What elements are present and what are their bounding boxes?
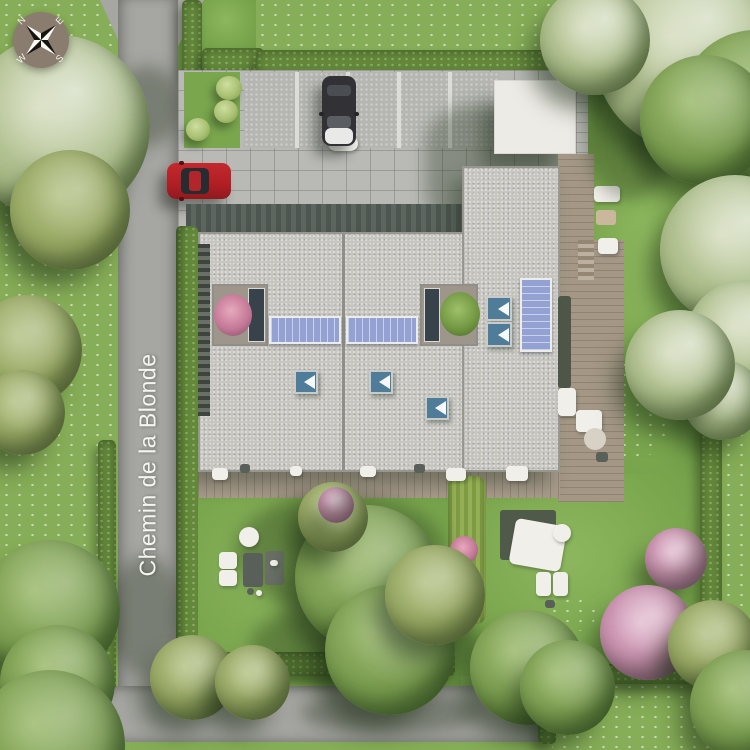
south-deck-furniture-4 xyxy=(360,466,376,477)
party-wall-line xyxy=(342,234,345,470)
right-garden-parasol-round xyxy=(553,524,571,542)
patio-right-window xyxy=(424,288,440,342)
tree-bottom-road-4 xyxy=(520,640,615,735)
south-deck-furniture-7 xyxy=(506,466,528,481)
garden-steps-east xyxy=(578,240,594,280)
compass-rose: N E S W xyxy=(13,12,69,68)
left-garden-parasol xyxy=(239,527,259,547)
tree-top-left-small xyxy=(10,150,130,270)
left-garden-rug-2 xyxy=(265,551,284,585)
tree-east-deck-blossom xyxy=(625,310,735,420)
black-car-rear-glass xyxy=(327,85,351,96)
bush-round-2 xyxy=(214,100,238,123)
patio-right-green-plant xyxy=(440,292,480,336)
deck-round-rug xyxy=(584,428,606,450)
black-car-windshield xyxy=(327,116,351,128)
black-car-mirror-right xyxy=(354,112,359,116)
shrub-pink-right xyxy=(645,528,707,590)
deck-grill xyxy=(596,452,608,462)
deck-sofa-south xyxy=(558,388,576,416)
tree-bottom-center-3 xyxy=(385,545,485,645)
south-deck-furniture-3 xyxy=(290,466,302,476)
tree-left-garden-pink-accent xyxy=(318,487,354,523)
skylight-5 xyxy=(486,322,512,347)
red-car-mirror-top xyxy=(179,161,184,165)
northwest-lawn xyxy=(202,0,256,50)
black-car xyxy=(322,76,356,146)
main-roof xyxy=(198,232,464,472)
right-garden-lounger-2 xyxy=(553,572,568,596)
east-deck-upper xyxy=(558,154,594,244)
compass-star-icon: N E S W xyxy=(13,12,69,68)
parking-stall-line-3 xyxy=(397,72,401,148)
hedge-along-road-east xyxy=(176,226,198,690)
deck-long-planter xyxy=(558,296,571,388)
garden-house xyxy=(494,80,576,154)
hedge-northwest-vertical xyxy=(182,0,202,76)
south-deck-furniture-2 xyxy=(240,464,250,473)
left-garden-pouf-white xyxy=(256,590,262,596)
left-garden-rug-1 xyxy=(243,553,263,587)
left-garden-pouf xyxy=(247,588,254,595)
bush-round-1 xyxy=(216,76,242,100)
tree-bottom-road-2 xyxy=(215,645,290,720)
skylight-1 xyxy=(294,370,318,394)
skylight-3 xyxy=(425,396,449,420)
site-plan-scene: Chemin de la Blonde N E S W xyxy=(0,0,750,750)
solar-array-east-wing xyxy=(520,278,552,352)
black-car-mirror-left xyxy=(319,112,324,116)
bush-round-3 xyxy=(186,118,210,141)
left-garden-side-table xyxy=(270,560,278,566)
left-garden-lounger-1 xyxy=(219,552,237,569)
deck-low-table xyxy=(596,210,616,225)
skylight-4 xyxy=(486,296,512,321)
patio-left-pink-plant xyxy=(214,294,252,336)
street-label: Chemin de la Blonde xyxy=(135,353,162,576)
south-deck-furniture-1 xyxy=(212,468,228,480)
right-garden-lounger-1 xyxy=(536,572,551,596)
parking-stall-line-1 xyxy=(295,72,299,148)
left-garden-lounger-2 xyxy=(219,570,237,586)
red-car-roof xyxy=(189,171,201,191)
red-car-mirror-bottom xyxy=(179,197,184,201)
south-deck-furniture-6 xyxy=(446,468,466,481)
black-car-hood xyxy=(325,128,353,144)
south-deck-furniture-5 xyxy=(414,464,425,473)
deck-chair-set xyxy=(598,238,618,254)
solar-array-left xyxy=(269,316,341,344)
patio-cutout-left xyxy=(212,284,268,346)
north-dark-deck xyxy=(186,204,464,234)
solar-array-right xyxy=(346,316,418,344)
red-car xyxy=(167,163,231,199)
patio-cutout-right xyxy=(420,284,478,346)
skylight-2 xyxy=(369,370,393,394)
